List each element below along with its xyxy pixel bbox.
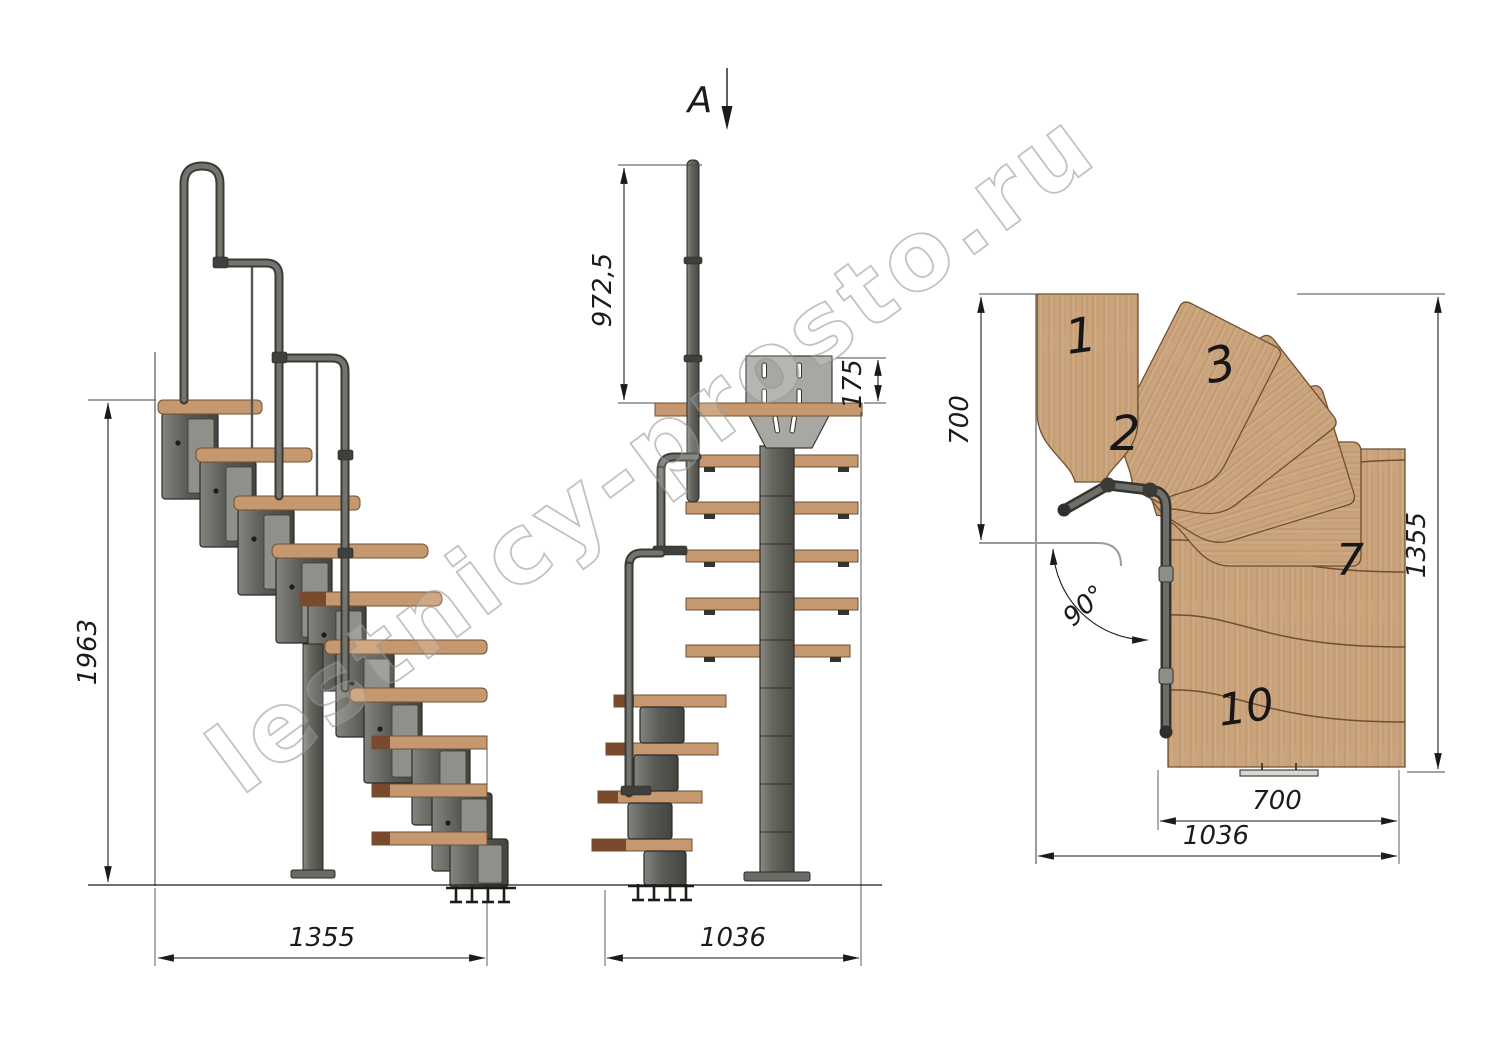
rail-end-cap [1160, 726, 1173, 739]
column-base-flange [291, 870, 335, 878]
tread [196, 448, 312, 462]
plan-landing-edge [979, 543, 1121, 566]
rail-clamp [213, 257, 228, 268]
dim-plan-flight-width: 700 [1252, 786, 1302, 816]
rail-clamp [272, 352, 287, 363]
dim-plan-height: 1355 [1402, 512, 1432, 578]
side-anchor-bolts [446, 886, 516, 902]
dim-plan-angle: 90° [1057, 579, 1111, 632]
tread-shadow [300, 592, 326, 606]
dim-plan-width: 1036 [1183, 821, 1249, 851]
tread-shadow [372, 832, 390, 845]
tread [158, 400, 262, 414]
column-base-flange [744, 872, 810, 881]
drawing-page: 1963 1355 A [0, 0, 1500, 1061]
tread-label-10: 10 [1215, 678, 1278, 736]
dim-side-width: 1355 [289, 923, 355, 953]
section-label: A [686, 80, 713, 121]
dim-plan-depth: 700 [945, 395, 975, 445]
dim-front-width: 1036 [700, 923, 766, 953]
dim-side-height: 1963 [73, 619, 103, 685]
plan-angle-annotation: 90° [1053, 549, 1148, 640]
module-block [450, 839, 508, 887]
rail-clamp [338, 450, 353, 460]
section-arrow-head [722, 106, 733, 130]
rail-elbow [1101, 478, 1116, 493]
section-marker: A [686, 68, 733, 130]
front-anchor-bolts [628, 884, 694, 900]
plan-view: 1 2 3 7 10 90° 700 [945, 294, 1445, 864]
rail-end-cap [1058, 504, 1071, 517]
rail-joint [1159, 566, 1173, 582]
dim-front-rail-height: 972,5 [588, 253, 618, 327]
tread-label-7: 7 [1336, 535, 1364, 586]
rail-joint [1159, 668, 1173, 684]
tread-shadow [372, 784, 390, 797]
tread-label-2: 2 [1110, 406, 1141, 462]
rail-clamp [338, 548, 353, 558]
tread-shadow [372, 736, 390, 749]
rail-elbow [1143, 483, 1158, 498]
staircase-drawing: 1963 1355 A [0, 0, 1500, 1061]
